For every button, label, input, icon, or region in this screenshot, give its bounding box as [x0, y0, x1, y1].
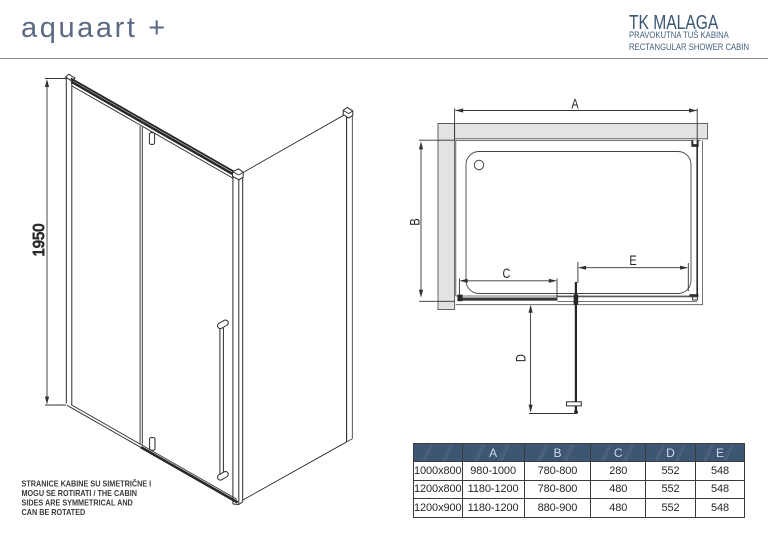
svg-text:STRANICE KABINE SU SIMETRIČNE: STRANICE KABINE SU SIMETRIČNE I [22, 479, 152, 489]
svg-text:D: D [513, 354, 529, 362]
svg-text:CAN BE ROTATED: CAN BE ROTATED [22, 508, 86, 518]
svg-text:C: C [503, 266, 511, 282]
svg-text:MOGU SE ROTIRATI / THE CABIN: MOGU SE ROTIRATI / THE CABIN [22, 489, 138, 499]
svg-text:1950: 1950 [31, 223, 48, 256]
svg-text:A: A [571, 96, 579, 112]
svg-text:E: E [629, 253, 636, 269]
svg-text:B: B [407, 218, 423, 225]
svg-text:SIDES ARE SYMMETRICAL AND: SIDES ARE SYMMETRICAL AND [22, 498, 134, 508]
